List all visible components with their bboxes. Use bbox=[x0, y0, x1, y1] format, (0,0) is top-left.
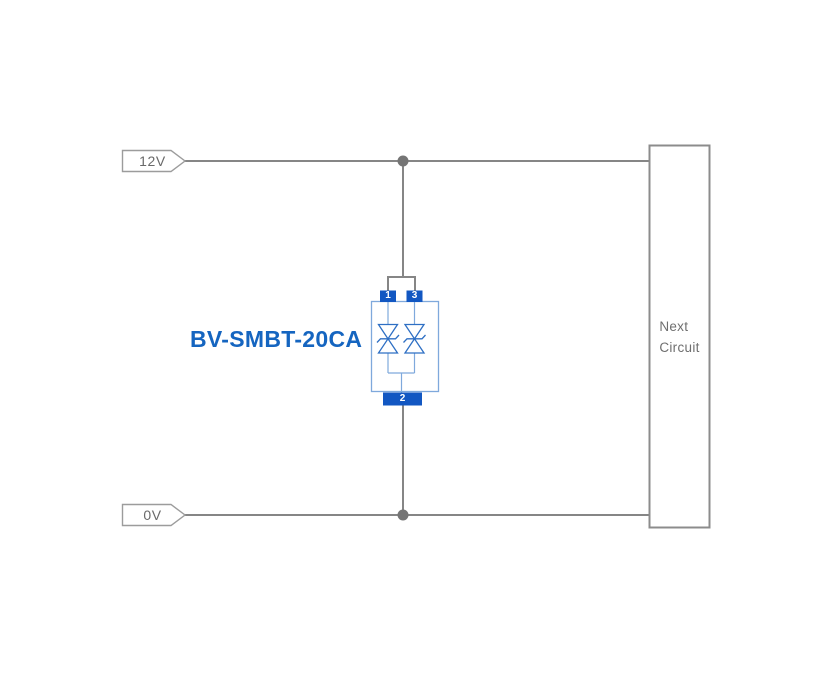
pin-number-1: 1 bbox=[380, 290, 396, 302]
pin-number-2: 2 bbox=[383, 392, 422, 406]
junction-dot-bottom bbox=[398, 510, 409, 521]
next-circuit-line1: Next bbox=[659, 316, 699, 337]
next-circuit-line2: Circuit bbox=[659, 337, 699, 358]
next-circuit-label: Next Circuit bbox=[649, 145, 710, 528]
circuit-diagram: 12V 0V BV-SMBT-20CA 1 3 2 Next Circuit bbox=[0, 0, 832, 675]
tvs-body-outline bbox=[372, 302, 439, 392]
next-circuit-label-lines: Next Circuit bbox=[659, 316, 699, 358]
pin-number-3: 3 bbox=[406, 290, 423, 302]
component-part-number: BV-SMBT-20CA bbox=[190, 325, 362, 353]
net-label-12v: 12V bbox=[122, 150, 183, 172]
net-label-0v: 0V bbox=[122, 504, 183, 526]
junction-dot-top bbox=[398, 156, 409, 167]
